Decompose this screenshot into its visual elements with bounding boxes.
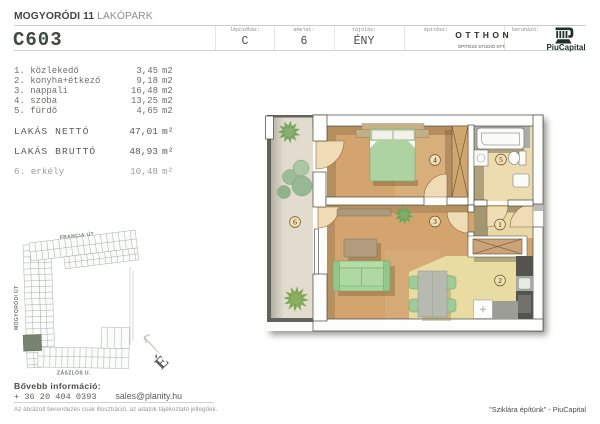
svg-text:5: 5 [499, 155, 503, 164]
svg-text:1: 1 [498, 220, 502, 229]
svg-text:4: 4 [433, 156, 437, 165]
svg-text:2: 2 [498, 276, 502, 285]
svg-text:É: É [151, 352, 173, 373]
svg-text:6: 6 [293, 218, 297, 227]
svg-text:MOGYORÓDI ÚT: MOGYORÓDI ÚT [12, 285, 20, 330]
svg-text:3: 3 [433, 217, 437, 226]
svg-text:ZÁSZLÓS U.: ZÁSZLÓS U. [57, 369, 91, 377]
